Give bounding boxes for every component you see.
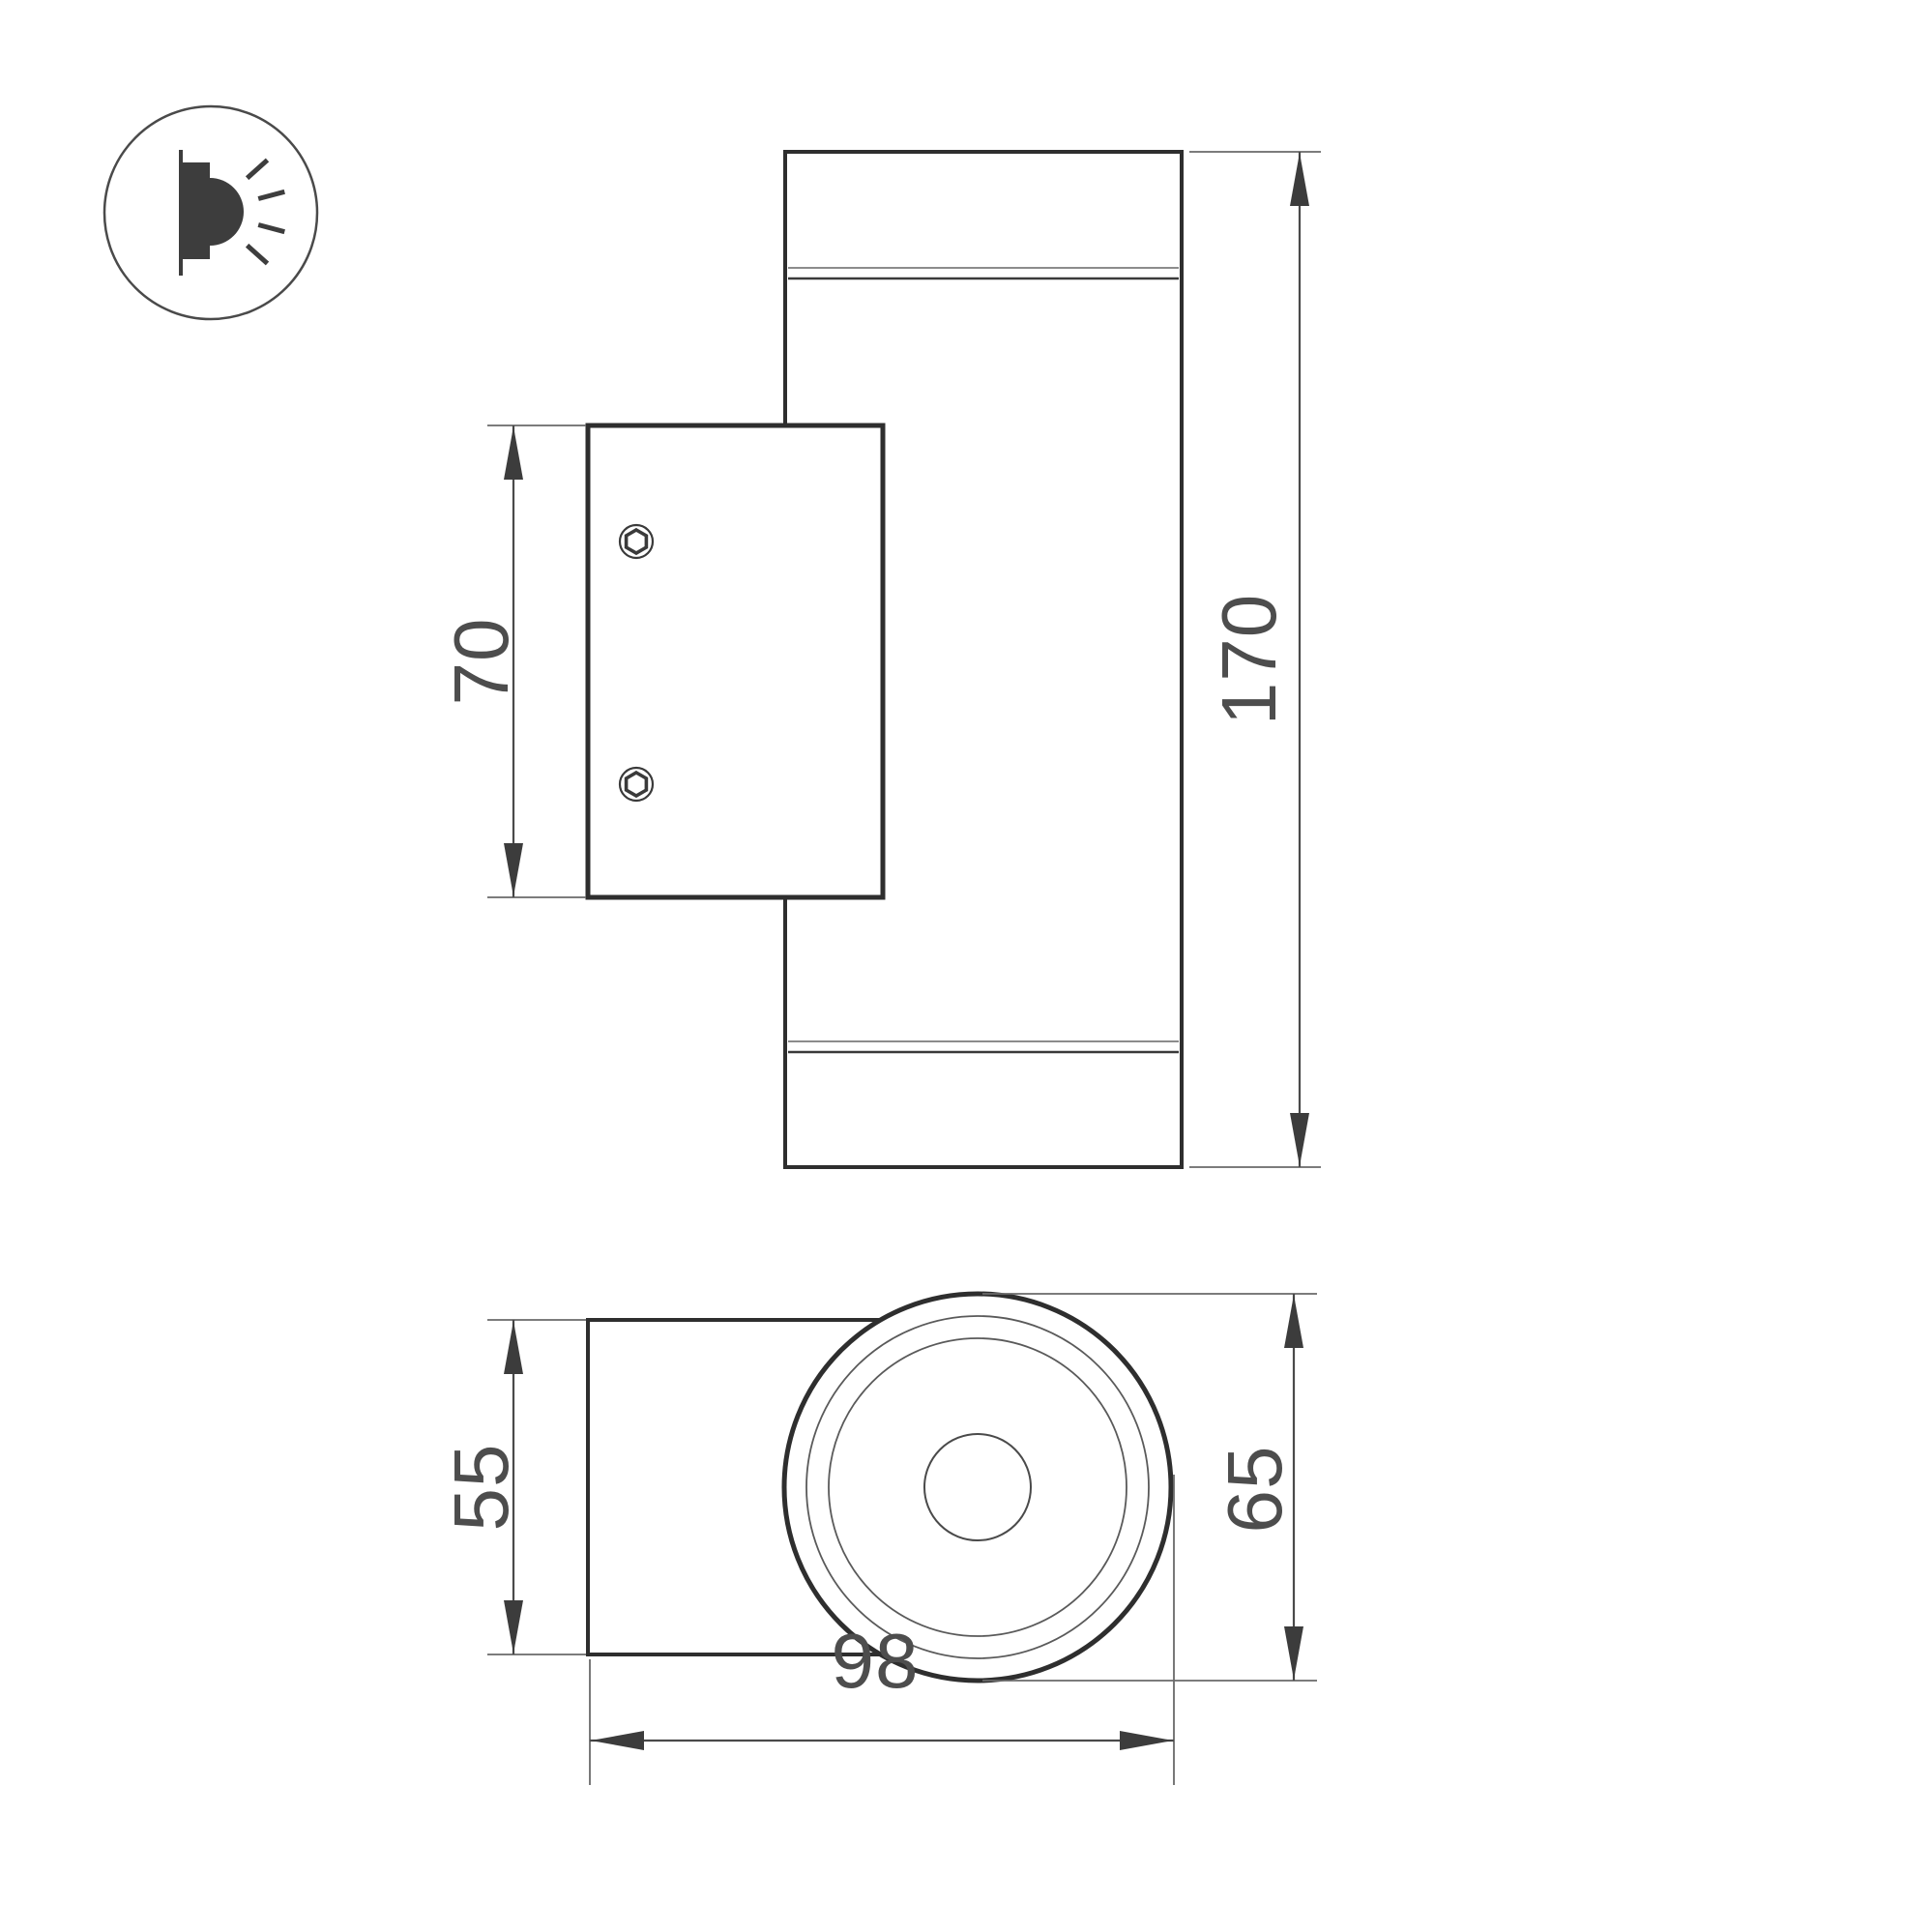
dim-label-70: 70 bbox=[438, 618, 524, 706]
hex-screw-bottom bbox=[620, 768, 653, 801]
hex-screw-top bbox=[620, 525, 653, 558]
dim-label-65: 65 bbox=[1212, 1446, 1298, 1534]
mounting-plate-outline bbox=[588, 425, 883, 897]
dim-label-98: 98 bbox=[832, 1618, 920, 1704]
dim-label-55: 55 bbox=[438, 1444, 524, 1532]
lamp-body-glyph bbox=[183, 162, 210, 259]
technical-drawing-canvas: 70 170 55 65 bbox=[0, 0, 1932, 1932]
dim-label-170: 170 bbox=[1206, 594, 1292, 725]
